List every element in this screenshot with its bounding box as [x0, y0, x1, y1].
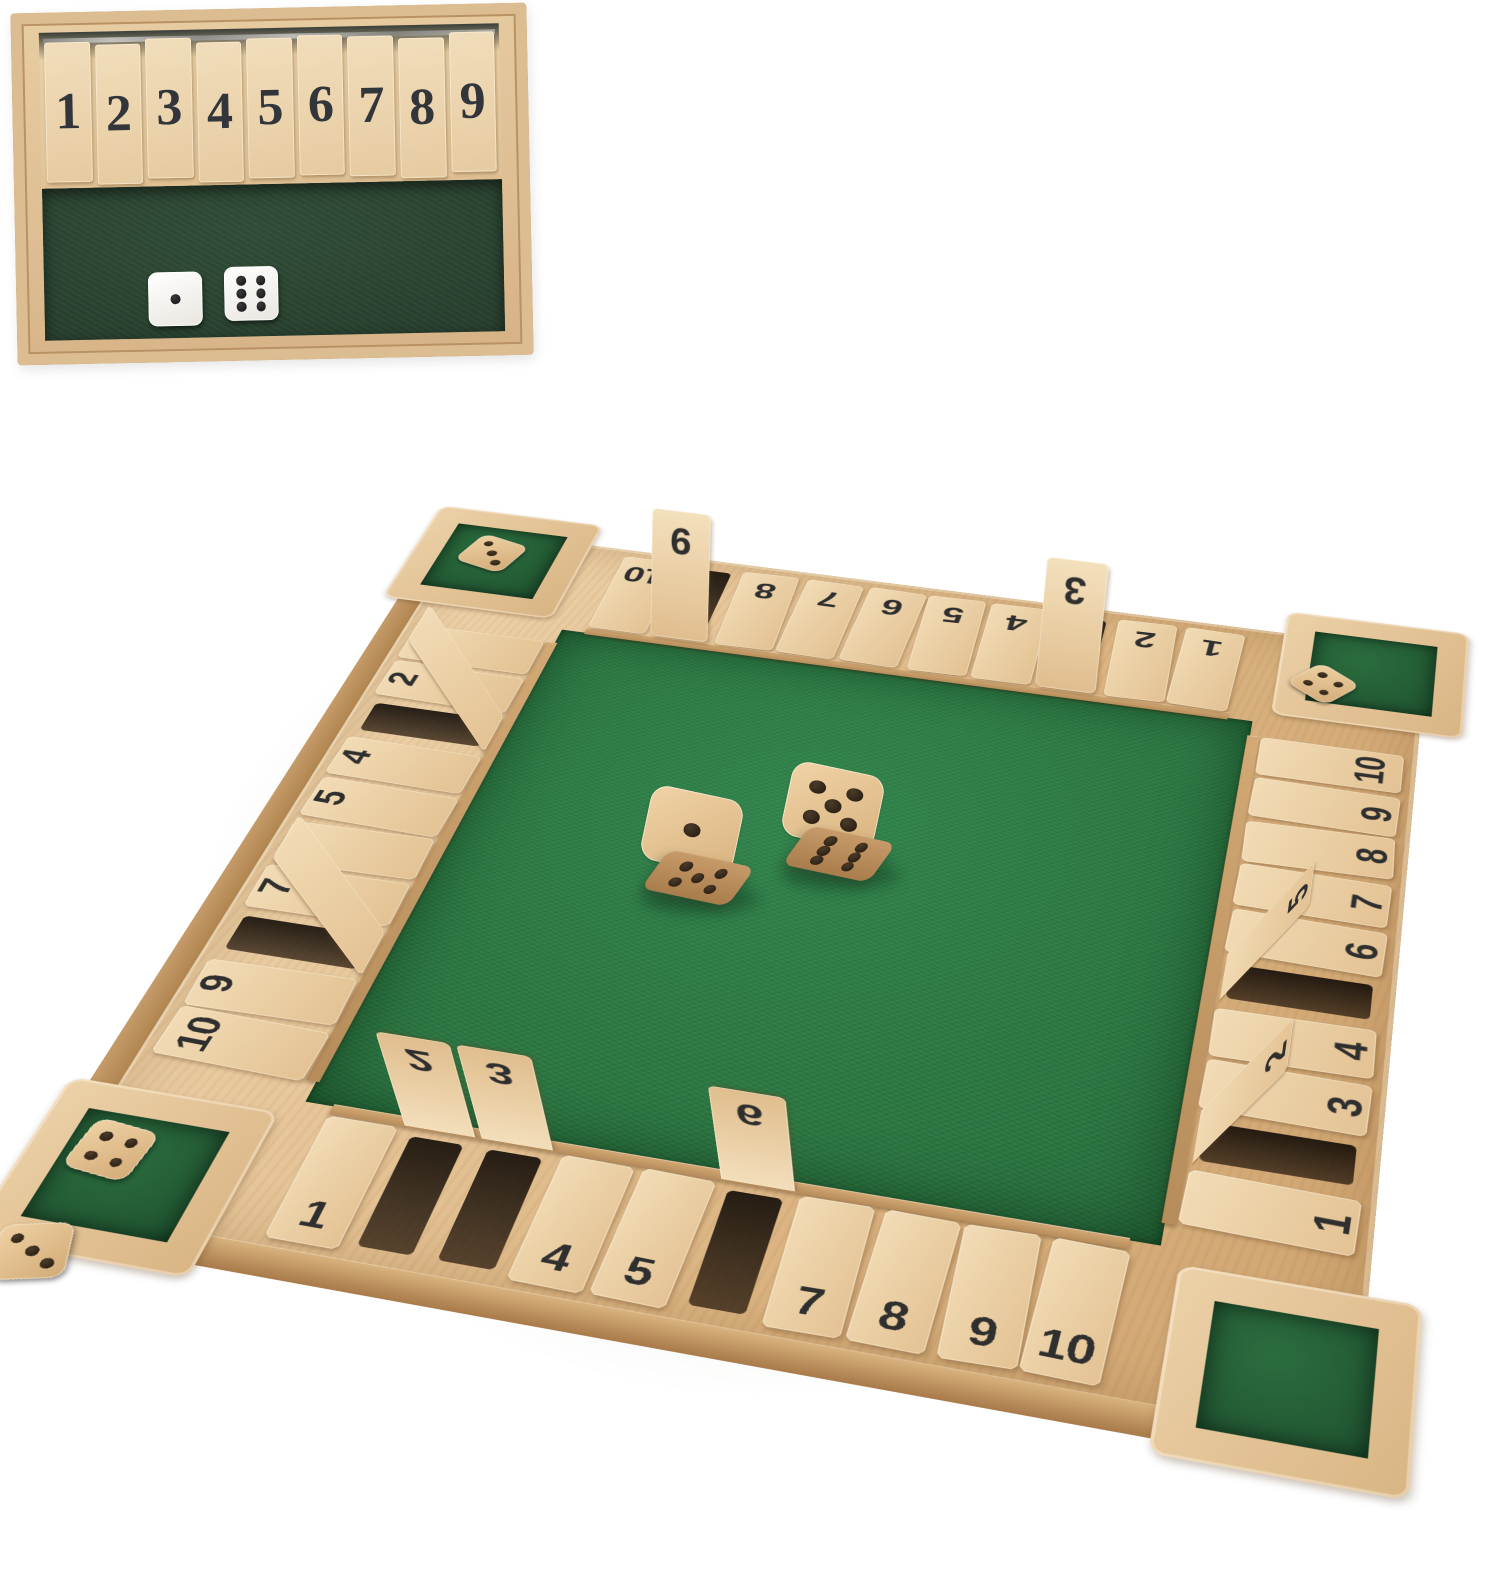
tile-number: 1: [1199, 636, 1225, 661]
pip: [170, 294, 180, 304]
pip: [802, 809, 821, 826]
pip: [682, 822, 701, 839]
pip: [1331, 681, 1344, 689]
inset-tile: 9: [448, 31, 496, 172]
inset-tile: 5: [246, 38, 294, 179]
number-tile: 9: [650, 508, 710, 643]
inset-tile: 8: [398, 37, 446, 178]
tile-number: 8: [752, 579, 780, 602]
tile-slot: 5: [299, 777, 459, 836]
tile-number: 4: [332, 748, 379, 767]
tile-number: 4: [535, 1236, 578, 1278]
pip: [808, 779, 827, 796]
tile-number: 6: [1338, 940, 1386, 963]
tile-number: 8: [873, 1295, 912, 1339]
pip: [689, 872, 707, 884]
pip: [122, 1137, 140, 1149]
tile-number: 4: [1327, 1040, 1376, 1064]
pip: [701, 884, 719, 896]
tile-number: 4: [1003, 611, 1029, 635]
tile-number: 3: [1320, 1094, 1371, 1120]
inset-tile: 6: [297, 34, 345, 175]
pip: [107, 1156, 125, 1168]
tile-number: 7: [815, 587, 844, 610]
tile-slot: 3: [1035, 611, 1114, 694]
tile-number: 9: [670, 520, 691, 560]
tile-slot: 5: [1216, 957, 1382, 1027]
tile-number: 7: [1344, 893, 1391, 915]
inset-classic-box-photo: 1 2 3 4 5 6 7 8 9: [10, 3, 533, 366]
tile-number: 10: [167, 1014, 232, 1055]
pip: [82, 1149, 100, 1161]
inset-tile: 3: [145, 38, 193, 179]
tile-number: 7: [790, 1280, 828, 1323]
white-die: [224, 266, 279, 321]
tile-number: 3: [483, 1056, 516, 1089]
pip: [237, 289, 247, 299]
pip: [845, 787, 864, 804]
inset-tile: 7: [347, 35, 395, 176]
tile-number: 10: [1034, 1322, 1100, 1373]
tile-slot: 2: [1101, 619, 1178, 703]
inset-tile: 2: [95, 44, 143, 185]
pip: [808, 854, 826, 866]
tile-slot: 1: [1179, 1171, 1361, 1255]
corner-compartment-top-right: [1271, 611, 1469, 739]
tile-number: 10: [1348, 755, 1393, 787]
pip: [485, 550, 499, 557]
number-tile: 6: [707, 1085, 794, 1194]
pip: [1302, 679, 1315, 687]
pip: [839, 861, 857, 873]
pip: [666, 876, 684, 888]
pip: [24, 1245, 40, 1256]
pip: [839, 816, 858, 833]
tile-number: 8: [1350, 847, 1395, 867]
tile-number: 2: [381, 670, 426, 688]
pip: [236, 276, 246, 286]
pip: [1317, 688, 1331, 696]
number-tile: 10: [1019, 1237, 1131, 1387]
number-tile: 2: [1103, 619, 1177, 702]
tile-number: 9: [1355, 805, 1400, 825]
tile-number: 6: [877, 595, 906, 619]
pip: [482, 540, 496, 547]
pip: [256, 288, 266, 298]
tile-number: 6: [733, 1097, 763, 1130]
tile-number: 2: [401, 1043, 435, 1076]
tile-number: 5: [939, 603, 965, 626]
number-tile: 3: [1035, 557, 1109, 694]
pip: [39, 1258, 55, 1269]
corner-felt: [1196, 1301, 1379, 1459]
inset-tile-row: 1 2 3 4 5 6 7 8 9: [44, 33, 497, 182]
tile-number: 9: [191, 973, 243, 995]
tile-number: 3: [1062, 570, 1087, 611]
tile-number: 5: [307, 788, 355, 808]
white-die: [148, 271, 203, 326]
pip: [97, 1130, 115, 1142]
pip: [237, 302, 247, 312]
tile-number: 2: [1132, 627, 1157, 651]
pip: [677, 861, 695, 873]
pip: [256, 301, 266, 311]
pip: [488, 559, 502, 566]
pip: [1316, 671, 1329, 679]
tile-number: 9: [964, 1310, 1000, 1354]
pip: [712, 868, 730, 880]
tile-number: 5: [617, 1251, 659, 1294]
tile-slot: 1: [1168, 627, 1243, 711]
inset-tile: 1: [44, 42, 92, 183]
inset-felt: [42, 179, 505, 341]
number-tile: 1: [1166, 627, 1246, 712]
tile-number: 1: [293, 1195, 337, 1236]
inset-tile: 4: [196, 42, 244, 183]
wooden-die: [786, 768, 886, 888]
wooden-die: [645, 792, 745, 912]
pip: [9, 1233, 25, 1243]
pip: [823, 798, 842, 815]
tile-number: 1: [1306, 1210, 1360, 1239]
pip: [256, 275, 266, 285]
